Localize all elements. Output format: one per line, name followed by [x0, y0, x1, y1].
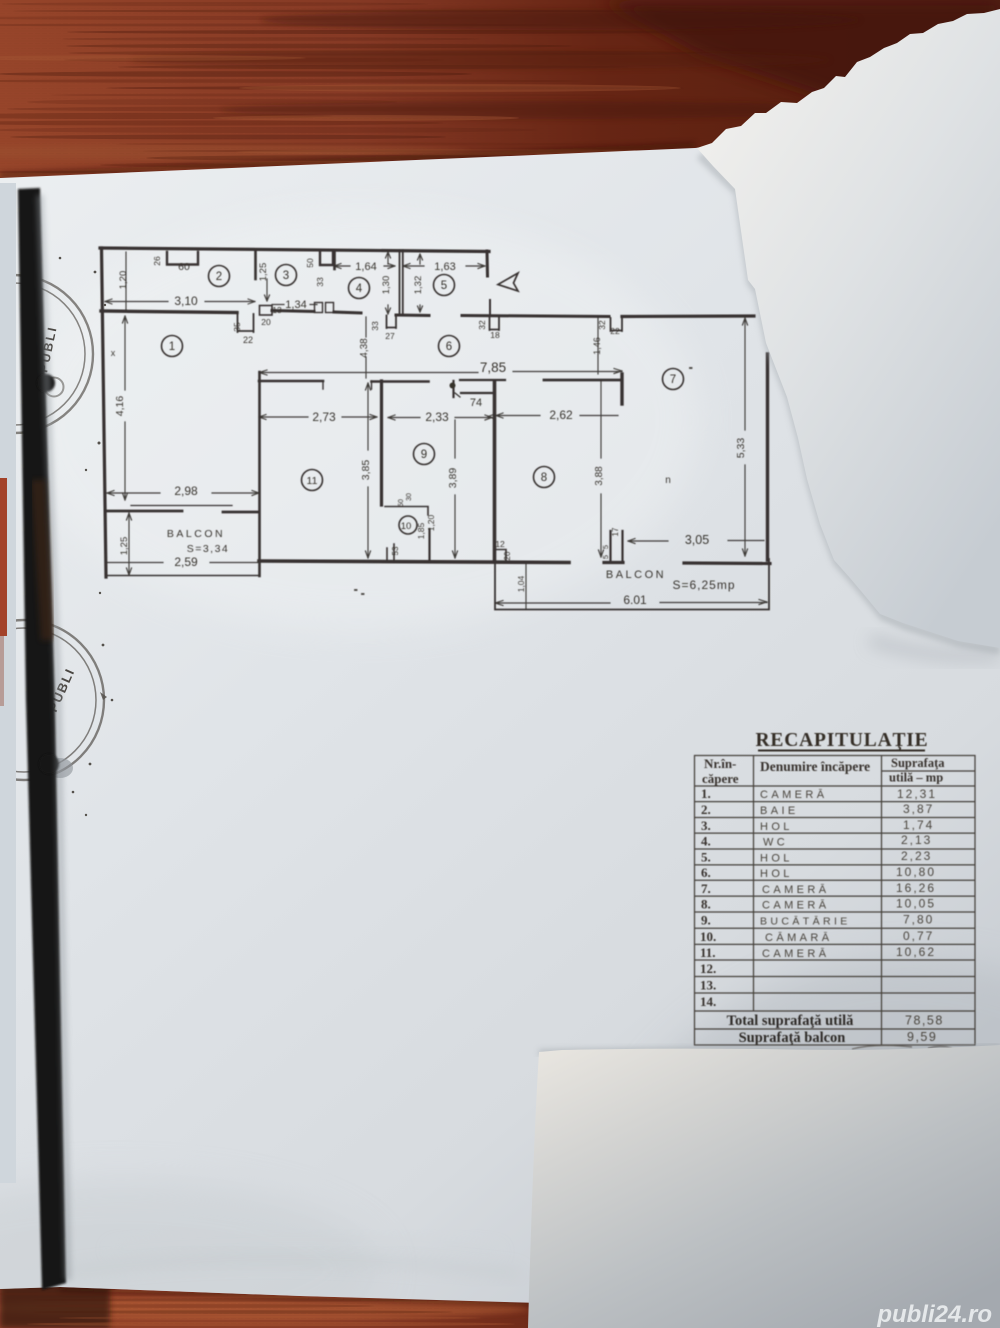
svg-text:4: 4: [356, 283, 363, 295]
svg-text:7.: 7.: [701, 881, 711, 896]
svg-text:CAMERĀ: CAMERĀ: [762, 948, 829, 960]
svg-text:7,85: 7,85: [480, 360, 506, 375]
svg-text:9.: 9.: [701, 913, 711, 928]
svg-text:1,85: 1,85: [416, 522, 426, 539]
svg-text:1: 1: [169, 341, 175, 353]
svg-text:10,05: 10,05: [896, 897, 936, 911]
svg-text:HOL: HOL: [760, 853, 793, 865]
svg-text:10,80: 10,80: [896, 865, 936, 879]
svg-text:14.: 14.: [700, 994, 716, 1009]
svg-text:26: 26: [152, 256, 162, 266]
svg-text:22: 22: [243, 335, 253, 345]
svg-text:BALCON: BALCON: [606, 569, 666, 581]
svg-text:3,89: 3,89: [447, 468, 459, 489]
svg-text:33: 33: [315, 277, 325, 287]
svg-text:3,10: 3,10: [174, 294, 198, 308]
svg-text:8: 8: [541, 472, 547, 484]
svg-text:4,16: 4,16: [114, 396, 126, 417]
svg-text:1.: 1.: [701, 786, 711, 801]
svg-text:16,26: 16,26: [896, 881, 936, 895]
svg-text:2,73: 2,73: [312, 410, 336, 424]
svg-text:CĀMARĀ: CĀMARĀ: [765, 932, 832, 944]
svg-text:Nr.în-: Nr.în-: [704, 756, 736, 771]
svg-text:S=3,34: S=3,34: [187, 543, 230, 555]
svg-text:3,85: 3,85: [360, 460, 372, 481]
svg-text:12,31: 12,31: [897, 787, 937, 801]
svg-text:CAMERĀ: CAMERĀ: [760, 789, 827, 801]
svg-text:78,58: 78,58: [905, 1014, 944, 1028]
svg-text:10.: 10.: [700, 929, 716, 944]
svg-text:1,30: 1,30: [381, 276, 392, 295]
svg-text:1,74: 1,74: [903, 818, 934, 832]
svg-text:1,34: 1,34: [285, 299, 306, 311]
svg-text:1,04: 1,04: [516, 575, 526, 592]
svg-text:x: x: [111, 348, 116, 358]
svg-text:3.: 3.: [701, 818, 711, 833]
svg-text:4.: 4.: [701, 834, 711, 849]
svg-text:5: 5: [601, 545, 610, 549]
svg-text:60: 60: [178, 261, 190, 273]
svg-text:53: 53: [391, 546, 400, 555]
svg-text:2,23: 2,23: [901, 849, 932, 863]
svg-text:1,63: 1,63: [434, 261, 455, 273]
svg-text:9,59: 9,59: [907, 1030, 937, 1044]
svg-text:5: 5: [601, 555, 610, 559]
svg-text:20: 20: [503, 551, 512, 560]
svg-text:căpere: căpere: [702, 771, 739, 786]
svg-text:11: 11: [307, 475, 318, 487]
svg-text:9: 9: [421, 449, 427, 461]
svg-text:S=6,25mp: S=6,25mp: [672, 578, 735, 592]
svg-text:32: 32: [597, 320, 607, 330]
svg-text:11.: 11.: [700, 945, 716, 960]
svg-text:5.: 5.: [701, 850, 711, 865]
svg-text:2.: 2.: [701, 802, 711, 817]
svg-text:6.01: 6.01: [623, 593, 647, 607]
svg-text:13: 13: [272, 305, 282, 315]
svg-text:1,64: 1,64: [355, 261, 376, 273]
svg-text:3,87: 3,87: [903, 802, 934, 816]
svg-text:12.: 12.: [700, 961, 716, 976]
svg-text:Suprafaţă balcon: Suprafaţă balcon: [739, 1030, 846, 1046]
svg-text:WC: WC: [763, 837, 788, 849]
svg-text:n: n: [665, 475, 671, 486]
svg-text:17: 17: [611, 527, 620, 536]
svg-text:utilă – mp: utilă – mp: [889, 771, 943, 785]
svg-text:publi24.ro: publi24.ro: [876, 1301, 992, 1328]
svg-text:7,80: 7,80: [903, 913, 934, 927]
svg-text:18: 18: [490, 330, 500, 340]
svg-text:50: 50: [305, 258, 315, 268]
svg-text:2,13: 2,13: [901, 833, 932, 847]
svg-text:33: 33: [370, 321, 380, 331]
svg-text:1,46: 1,46: [592, 337, 602, 355]
svg-text:4,38: 4,38: [359, 338, 370, 358]
svg-text:2: 2: [216, 271, 222, 283]
svg-text:3: 3: [283, 270, 289, 282]
svg-text:BAIE: BAIE: [760, 805, 799, 817]
svg-text:6: 6: [446, 341, 452, 353]
svg-text:30: 30: [406, 493, 413, 501]
svg-text:Denumire încăpere: Denumire încăpere: [760, 759, 870, 774]
svg-text:12: 12: [495, 539, 505, 549]
svg-text:RECAPITULAŢIE: RECAPITULAŢIE: [756, 730, 929, 751]
svg-text:0,77: 0,77: [903, 929, 934, 943]
svg-text:1,20: 1,20: [118, 271, 129, 290]
svg-text:13.: 13.: [700, 978, 716, 993]
svg-text:3,05: 3,05: [685, 533, 709, 547]
svg-text:8.: 8.: [701, 897, 711, 912]
svg-text:10: 10: [401, 521, 412, 532]
svg-text:20: 20: [261, 317, 271, 327]
svg-text:10,62: 10,62: [896, 945, 936, 959]
svg-text:HOL: HOL: [760, 868, 793, 880]
svg-text:BALCON: BALCON: [167, 528, 225, 540]
svg-text:HOL: HOL: [760, 821, 793, 833]
svg-text:74: 74: [470, 397, 482, 409]
svg-text:2,33: 2,33: [425, 410, 449, 424]
svg-text:5,33: 5,33: [735, 438, 747, 459]
svg-text:5: 5: [441, 280, 447, 292]
svg-text:1,25: 1,25: [258, 263, 269, 282]
svg-text:2,59: 2,59: [174, 555, 198, 569]
svg-text:32: 32: [477, 320, 487, 330]
svg-text:1,25: 1,25: [119, 537, 130, 556]
svg-text:Suprafaţa: Suprafaţa: [891, 756, 945, 770]
svg-text:27: 27: [385, 331, 395, 341]
svg-text:BUCĀTĀRIE: BUCĀTĀRIE: [760, 916, 851, 928]
svg-text:7: 7: [670, 374, 676, 386]
svg-text:2,98: 2,98: [174, 484, 198, 498]
svg-text:Total suprafaţă utilă: Total suprafaţă utilă: [727, 1013, 855, 1029]
svg-text:6.: 6.: [701, 865, 711, 880]
svg-text:CAMERĀ: CAMERĀ: [762, 884, 829, 896]
svg-text:50: 50: [398, 499, 405, 507]
svg-text:3,88: 3,88: [594, 466, 605, 486]
svg-text:2,62: 2,62: [549, 408, 573, 422]
svg-text:CAMERĀ: CAMERĀ: [762, 900, 829, 912]
svg-text:22: 22: [610, 326, 620, 336]
svg-text:1,20: 1,20: [426, 514, 436, 531]
svg-text:1,32: 1,32: [413, 276, 424, 295]
svg-text:35: 35: [232, 322, 242, 332]
